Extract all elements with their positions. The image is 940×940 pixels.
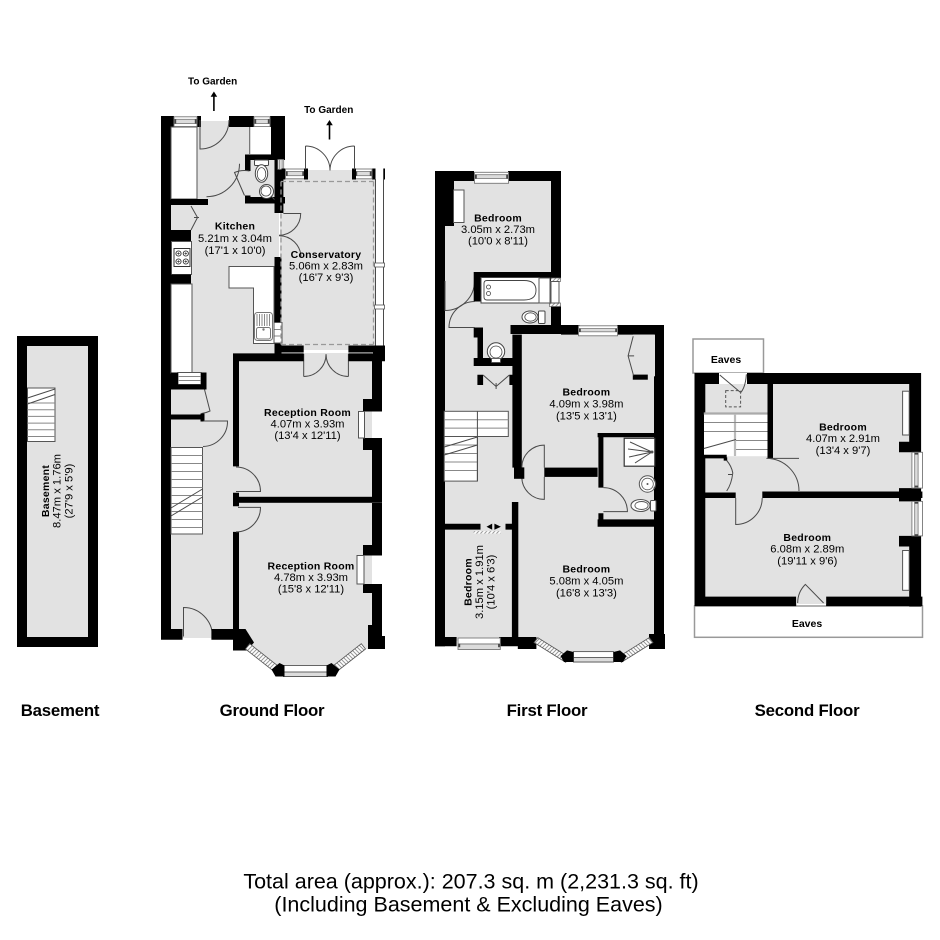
svg-text:Total area (approx.): 207.3 sq: Total area (approx.): 207.3 sq. m (2,231… <box>243 869 698 893</box>
svg-text:3.05m x 2.73m: 3.05m x 2.73m <box>461 224 535 236</box>
svg-text:4.78m x 3.93m: 4.78m x 3.93m <box>274 572 348 584</box>
svg-text:5.06m x 2.83m: 5.06m x 2.83m <box>289 261 363 273</box>
svg-text:Basement: Basement <box>21 701 100 720</box>
svg-text:4.09m x 3.98m: 4.09m x 3.98m <box>549 399 623 411</box>
svg-text:Bedroom: Bedroom <box>562 387 610 399</box>
svg-text:8.47m x 1.76m: 8.47m x 1.76m <box>52 454 64 528</box>
svg-text:Bedroom: Bedroom <box>463 558 475 606</box>
svg-text:5.21m x 3.04m: 5.21m x 3.04m <box>198 233 272 245</box>
svg-text:(13'4 x 9'7): (13'4 x 9'7) <box>816 445 871 457</box>
svg-text:(15'8 x 12'11): (15'8 x 12'11) <box>278 584 345 596</box>
svg-text:(10'0 x 8'11): (10'0 x 8'11) <box>468 236 528 248</box>
svg-text:3.15m x 1.91m: 3.15m x 1.91m <box>474 545 486 619</box>
svg-text:(Including Basement & Excludin: (Including Basement & Excluding Eaves) <box>274 893 662 917</box>
svg-text:4.07m x 2.91m: 4.07m x 2.91m <box>806 433 880 445</box>
svg-text:Basement: Basement <box>40 465 52 517</box>
svg-text:(27'9 x 5'9): (27'9 x 5'9) <box>63 463 75 518</box>
svg-text:4.07m x 3.93m: 4.07m x 3.93m <box>271 419 345 431</box>
svg-text:Bedroom: Bedroom <box>562 564 610 576</box>
svg-text:Kitchen: Kitchen <box>215 221 255 233</box>
svg-text:(13'4 x 12'11): (13'4 x 12'11) <box>274 430 341 442</box>
svg-text:Ground Floor: Ground Floor <box>220 701 325 720</box>
svg-text:To Garden: To Garden <box>304 105 353 116</box>
svg-text:Reception Room: Reception Room <box>264 407 351 419</box>
svg-text:Second Floor: Second Floor <box>755 701 860 720</box>
svg-text:(17'1 x 10'0): (17'1 x 10'0) <box>205 245 266 257</box>
svg-text:(10'4 x 6'3): (10'4 x 6'3) <box>486 554 498 609</box>
svg-text:Eaves: Eaves <box>792 618 823 630</box>
svg-text:(16'8 x 13'3): (16'8 x 13'3) <box>556 588 617 600</box>
svg-text:To Garden: To Garden <box>188 77 237 88</box>
svg-text:6.08m x 2.89m: 6.08m x 2.89m <box>770 544 844 556</box>
svg-text:First Floor: First Floor <box>507 701 588 720</box>
svg-text:(19'11 x 9'6): (19'11 x 9'6) <box>777 555 837 567</box>
svg-text:(16'7 x 9'3): (16'7 x 9'3) <box>299 272 354 284</box>
svg-text:Conservatory: Conservatory <box>291 249 362 261</box>
svg-text:Eaves: Eaves <box>711 354 742 366</box>
svg-text:5.08m x 4.05m: 5.08m x 4.05m <box>549 576 623 588</box>
svg-text:Bedroom: Bedroom <box>819 422 867 434</box>
svg-text:Bedroom: Bedroom <box>783 532 831 544</box>
svg-text:Reception Room: Reception Room <box>268 561 355 573</box>
svg-text:(13'5 x 13'1): (13'5 x 13'1) <box>556 411 617 423</box>
svg-text:Bedroom: Bedroom <box>474 212 522 224</box>
